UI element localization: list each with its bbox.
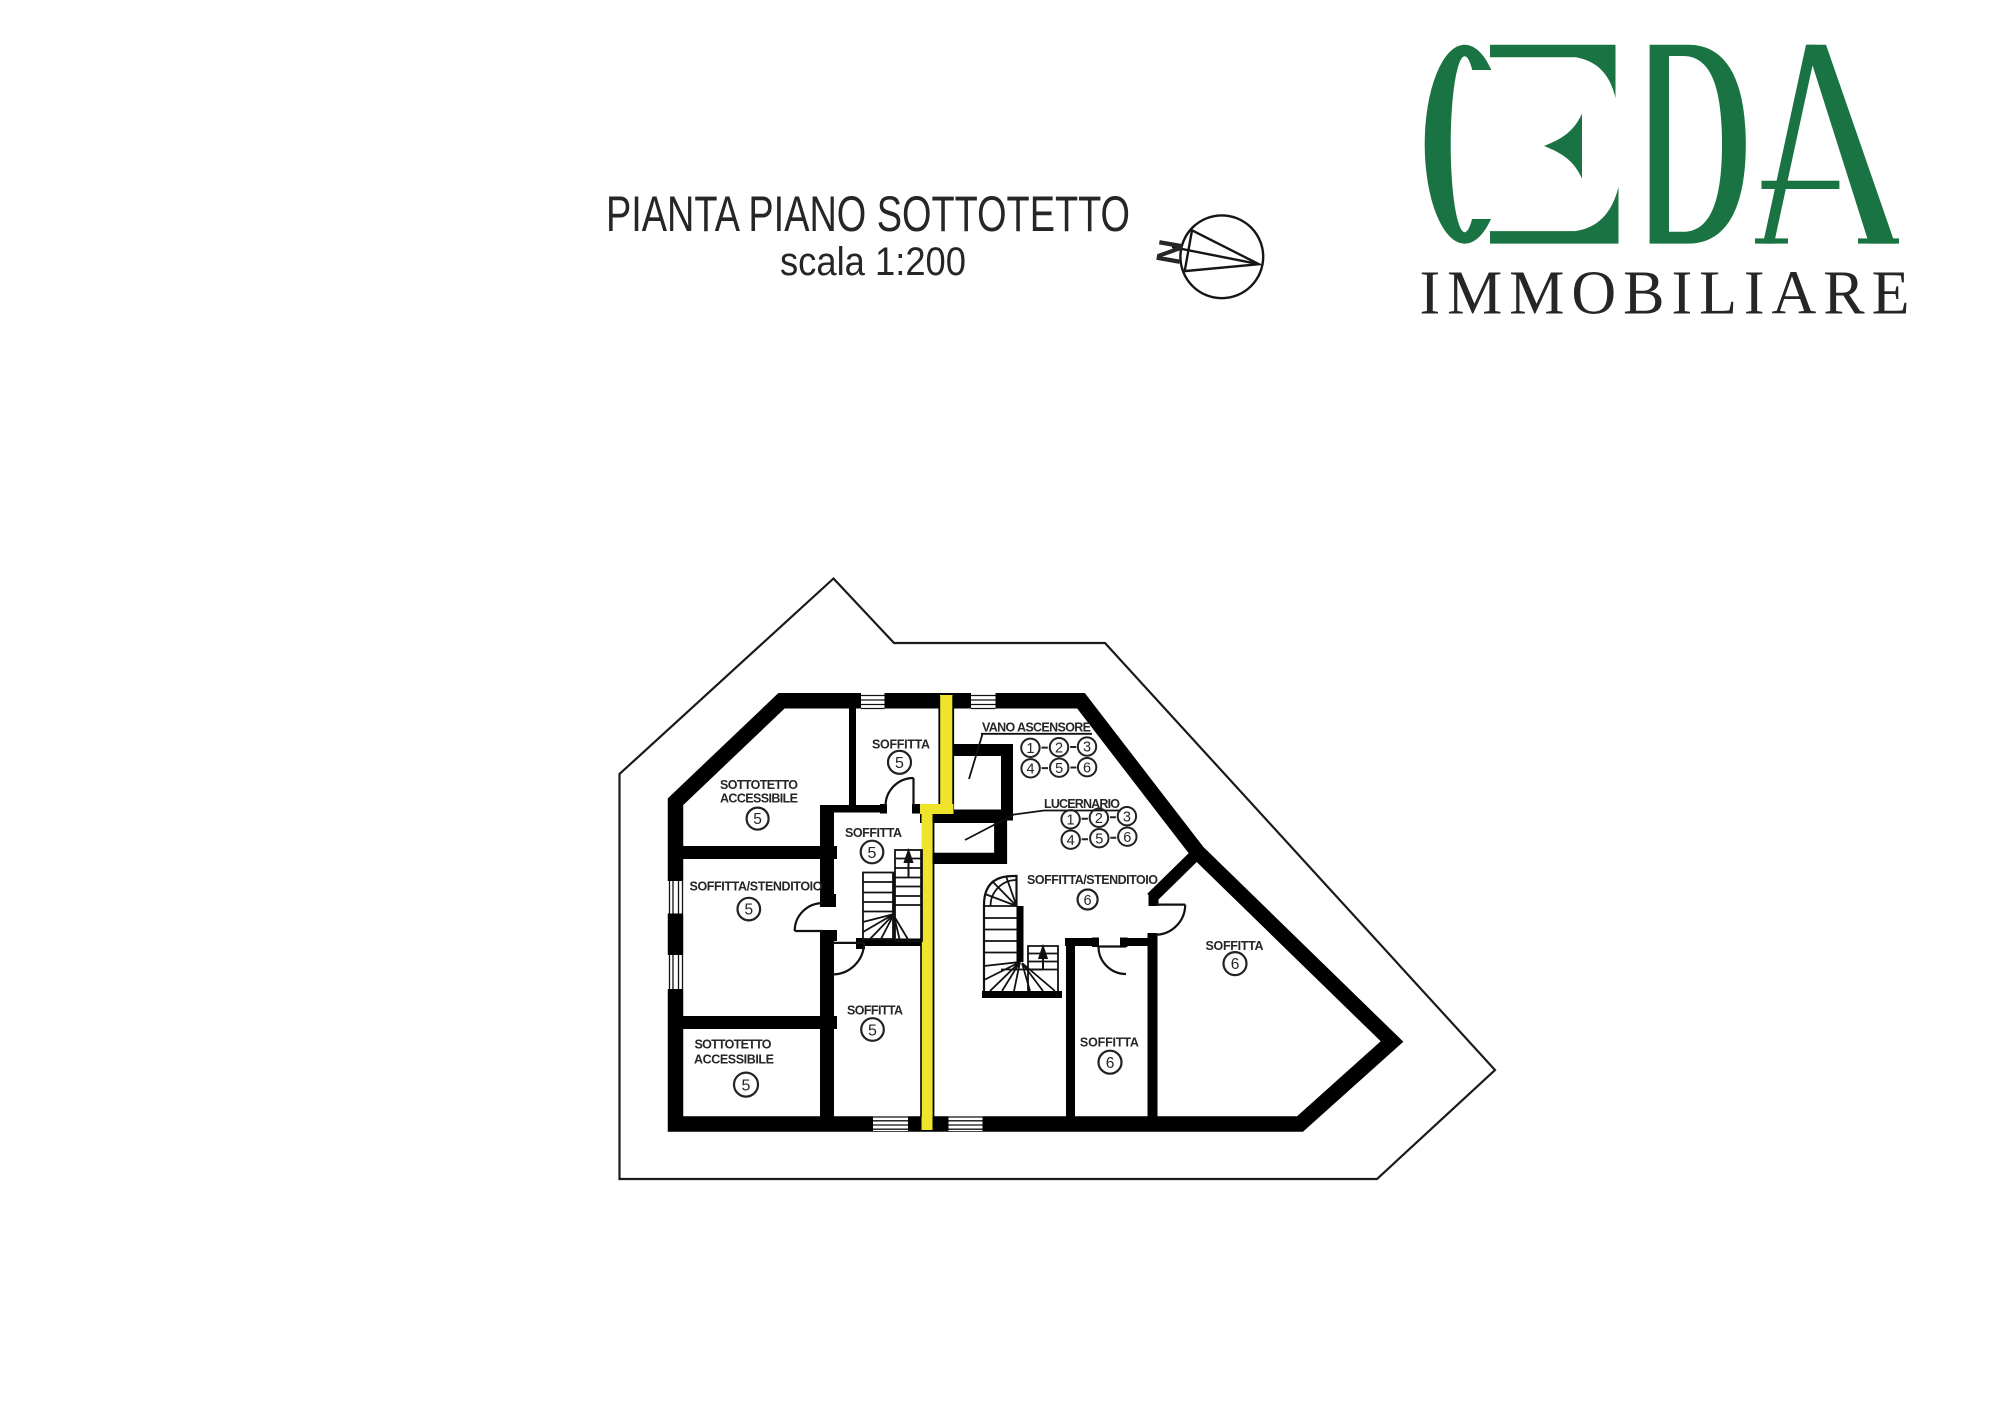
svg-text:6: 6: [1084, 893, 1092, 909]
svg-text:3: 3: [1123, 809, 1131, 825]
svg-text:5: 5: [1055, 761, 1063, 777]
svg-text:SOFFITTA/STENDITOIO: SOFFITTA/STENDITOIO: [1027, 873, 1158, 887]
svg-text:SOFFITTA/STENDITOIO: SOFFITTA/STENDITOIO: [690, 880, 823, 894]
svg-text:5: 5: [868, 845, 877, 862]
svg-text:4: 4: [1067, 833, 1075, 849]
svg-text:6: 6: [1106, 1055, 1115, 1072]
svg-text:6: 6: [1083, 760, 1091, 776]
svg-text:SOFFITTA: SOFFITTA: [1206, 939, 1264, 953]
svg-text:5: 5: [868, 1022, 877, 1039]
svg-text:5: 5: [753, 811, 762, 828]
svg-text:LUCERNARIO: LUCERNARIO: [1044, 797, 1120, 811]
svg-text:PIANTA PIANO SOTTOTETTO: PIANTA PIANO SOTTOTETTO: [606, 186, 1130, 242]
svg-text:SOTTOTETTO: SOTTOTETTO: [695, 1037, 772, 1051]
svg-text:5: 5: [744, 902, 753, 919]
svg-text:4: 4: [1027, 761, 1035, 777]
svg-text:5: 5: [1095, 831, 1103, 847]
svg-text:1: 1: [1067, 812, 1075, 828]
svg-text:3: 3: [1083, 740, 1091, 756]
svg-text:IMMOBILIARE: IMMOBILIARE: [1420, 260, 1910, 328]
svg-text:5: 5: [742, 1078, 751, 1095]
svg-text:N: N: [1148, 237, 1190, 268]
svg-text:2: 2: [1095, 811, 1103, 827]
svg-text:scala 1:200: scala 1:200: [780, 240, 966, 284]
svg-text:VANO ASCENSORE: VANO ASCENSORE: [982, 721, 1091, 735]
svg-text:6: 6: [1123, 830, 1131, 846]
svg-text:5: 5: [895, 755, 904, 772]
svg-text:ACCESSIBILE: ACCESSIBILE: [720, 792, 798, 806]
svg-text:SOTTOTETTO: SOTTOTETTO: [720, 778, 798, 792]
svg-text:ACCESSIBILE: ACCESSIBILE: [694, 1053, 774, 1067]
svg-text:6: 6: [1231, 956, 1240, 973]
svg-text:SOFFITTA: SOFFITTA: [872, 738, 930, 752]
svg-text:1: 1: [1026, 741, 1034, 757]
svg-text:2: 2: [1055, 740, 1063, 756]
svg-text:SOFFITTA: SOFFITTA: [1080, 1036, 1139, 1050]
svg-text:SOFFITTA: SOFFITTA: [845, 826, 902, 840]
svg-text:SOFFITTA: SOFFITTA: [847, 1004, 903, 1018]
